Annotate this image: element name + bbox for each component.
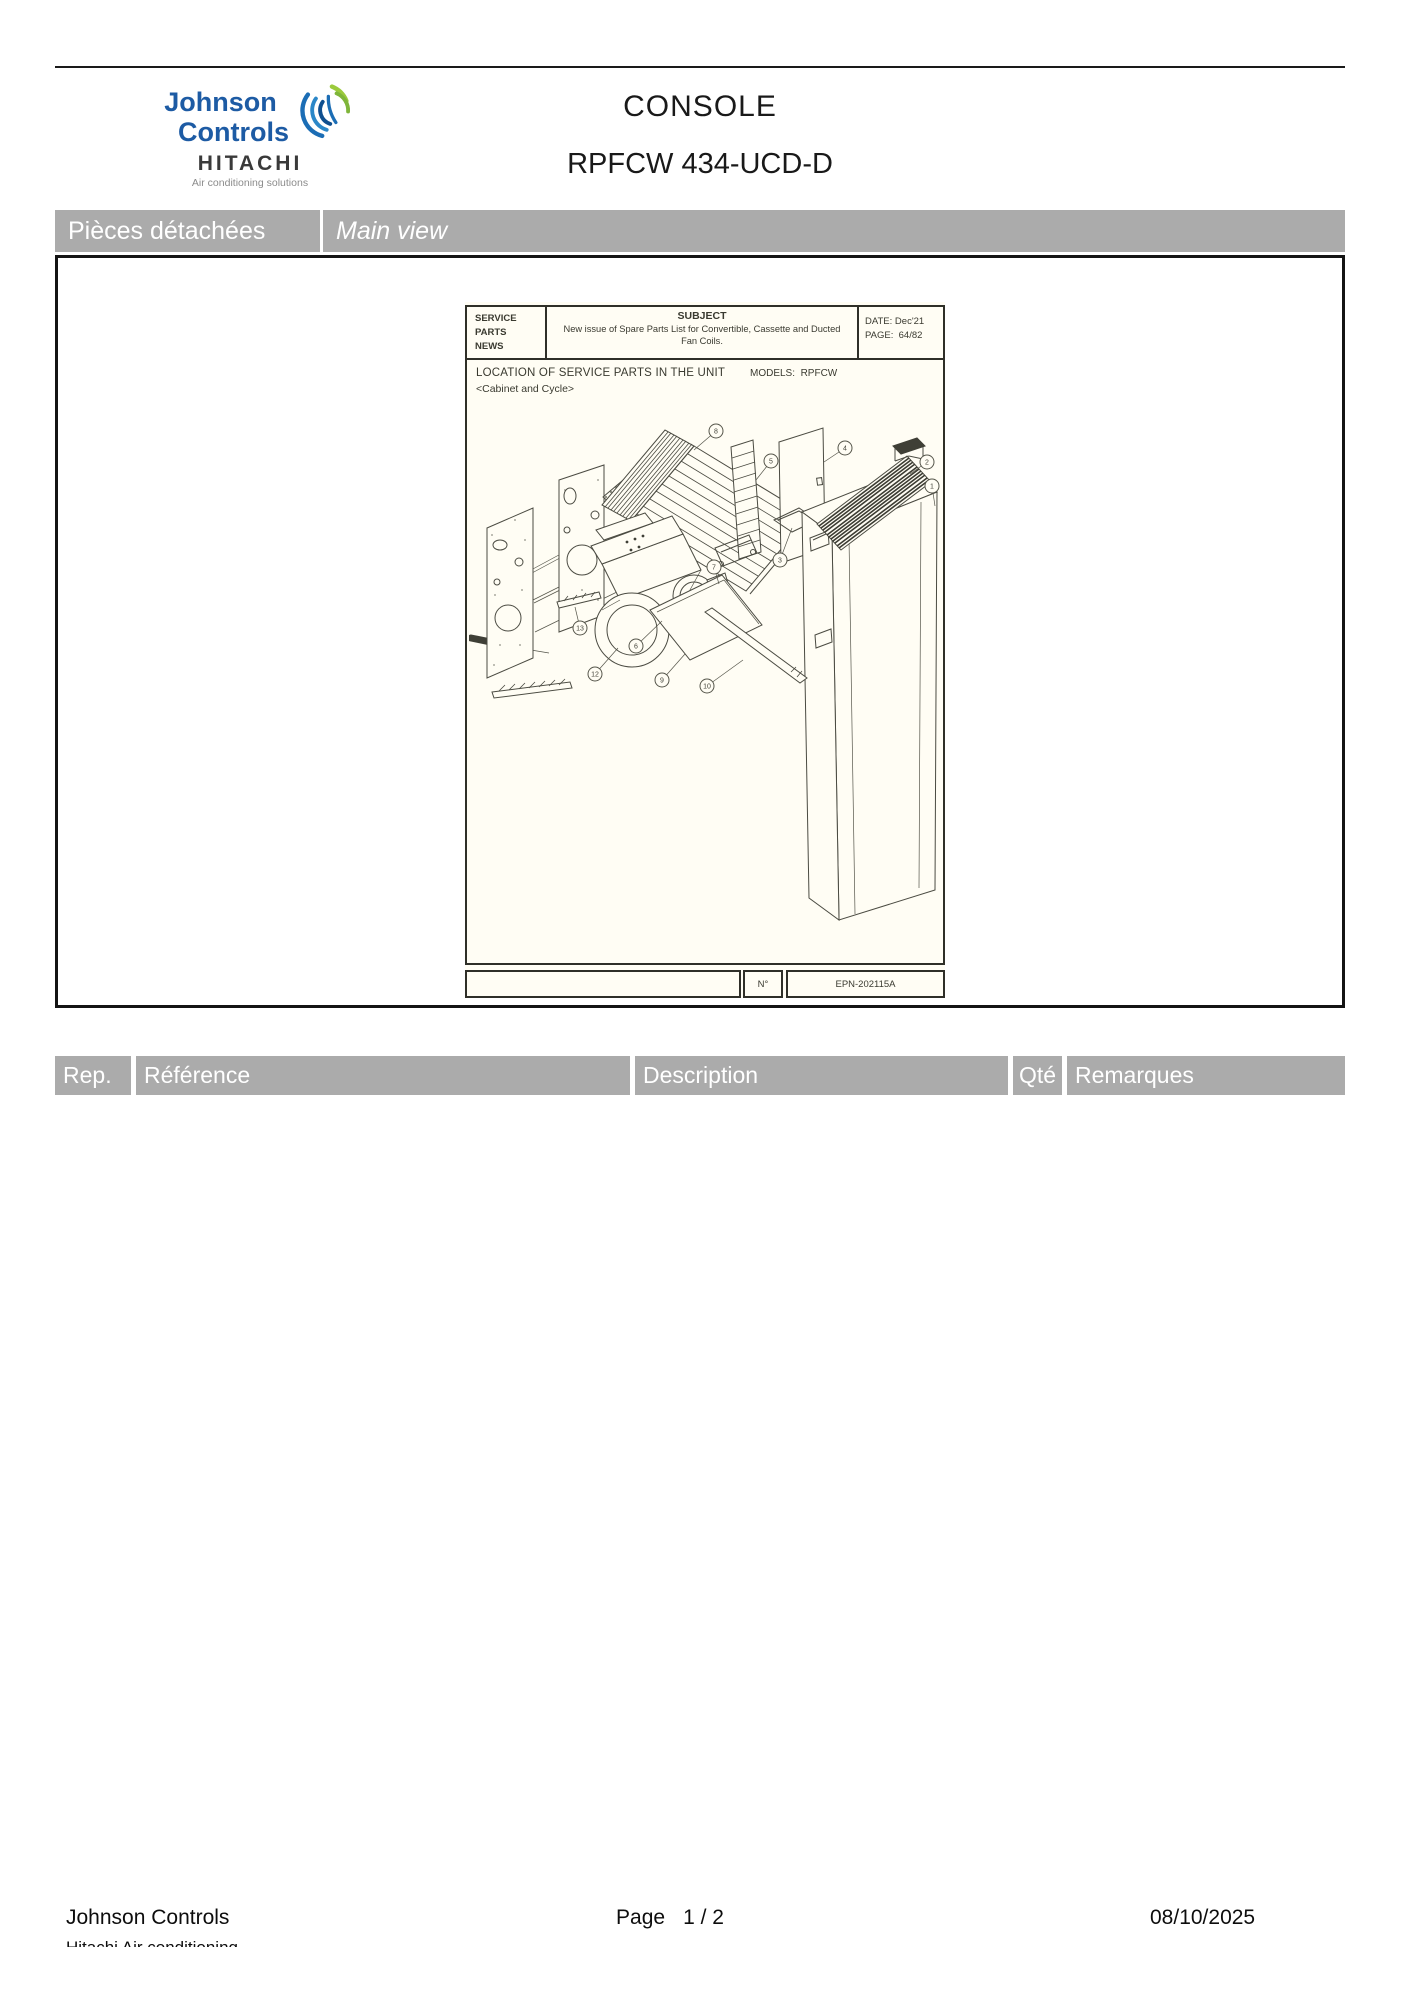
section-label-view: Main view — [323, 210, 1345, 252]
sheet-body: LOCATION OF SERVICE PARTS IN THE UNIT <C… — [465, 358, 945, 965]
cabinet — [802, 470, 937, 920]
footer-page-number: 1 / 2 — [683, 1906, 724, 1929]
sheet-subject-cell: SUBJECT New issue of Spare Parts List fo… — [547, 307, 857, 358]
svg-text:4: 4 — [843, 446, 847, 453]
svg-text:13: 13 — [576, 626, 584, 633]
models-line: MODELS: RPFCW — [750, 368, 837, 379]
sheet-footer-blank — [465, 970, 741, 998]
column-header-rep: Rep. — [55, 1056, 131, 1095]
column-header-description: Description — [635, 1056, 1008, 1095]
sheet-page-line: PAGE: 64/82 — [865, 329, 943, 343]
drawing-number-value: EPN-202115A — [786, 970, 945, 998]
section-bar: Pièces détachées Main view — [55, 210, 1345, 252]
svg-text:1: 1 — [930, 484, 934, 491]
sheet-footer: N° EPN-202115A — [465, 970, 945, 998]
page: Johnson Controls HITACHI Air conditionin… — [0, 0, 1410, 1993]
sheet-date-line: DATE: Dec'21 — [865, 315, 943, 329]
footer-date: 08/10/2025 — [1150, 1906, 1255, 1930]
column-header-qty: Qté — [1013, 1056, 1062, 1095]
drawing-number-label: N° — [743, 970, 783, 998]
footer-company-line2-clipped: Hitachi Air conditioning — [66, 1938, 326, 1947]
svg-text:3: 3 — [778, 558, 782, 565]
footer-page-label: Page — [616, 1906, 665, 1929]
svg-text:5: 5 — [769, 459, 773, 466]
svg-text:6: 6 — [634, 644, 638, 651]
model-subtitle: RPFCW 434-UCD-D — [55, 148, 1345, 181]
footer-page-indicator: Page1 / 2 — [455, 1906, 885, 1930]
sheet-date-cell: DATE: Dec'21 PAGE: 64/82 — [857, 307, 943, 358]
side-panel-left — [487, 508, 533, 678]
svg-text:12: 12 — [591, 672, 599, 679]
svg-text:8: 8 — [714, 429, 718, 436]
service-parts-sheet: SERVICE PARTS NEWS SUBJECT New issue of … — [465, 302, 945, 998]
footer-company: Johnson Controls — [66, 1906, 229, 1930]
svg-text:7: 7 — [712, 565, 716, 572]
top-divider — [55, 66, 1345, 68]
column-header-remarks: Remarques — [1067, 1056, 1345, 1095]
sheet-header: SERVICE PARTS NEWS SUBJECT New issue of … — [465, 305, 945, 360]
parts-table-header: Rep. Référence Description Qté Remarques — [55, 1056, 1345, 1095]
strip-part — [492, 679, 572, 698]
masthead-line3: NEWS — [475, 340, 545, 354]
masthead-line1: SERVICE — [475, 312, 545, 326]
section-label-pieces: Pièces détachées — [55, 210, 320, 252]
exploded-parts-diagram: 854213713126910 — [469, 420, 943, 960]
page-title: CONSOLE — [55, 90, 1345, 124]
masthead-line2: PARTS — [475, 326, 545, 340]
narrow-coil — [715, 440, 761, 567]
location-title: LOCATION OF SERVICE PARTS IN THE UNIT — [476, 367, 725, 379]
subject-label: SUBJECT — [555, 310, 849, 322]
svg-text:2: 2 — [925, 460, 929, 467]
location-subtitle: <Cabinet and Cycle> — [476, 383, 574, 395]
subject-text: New issue of Spare Parts List for Conver… — [555, 323, 849, 347]
drain-pan — [650, 575, 762, 660]
column-header-reference: Référence — [136, 1056, 630, 1095]
svg-text:10: 10 — [703, 684, 711, 691]
sheet-masthead: SERVICE PARTS NEWS — [467, 307, 547, 358]
svg-text:9: 9 — [660, 678, 664, 685]
